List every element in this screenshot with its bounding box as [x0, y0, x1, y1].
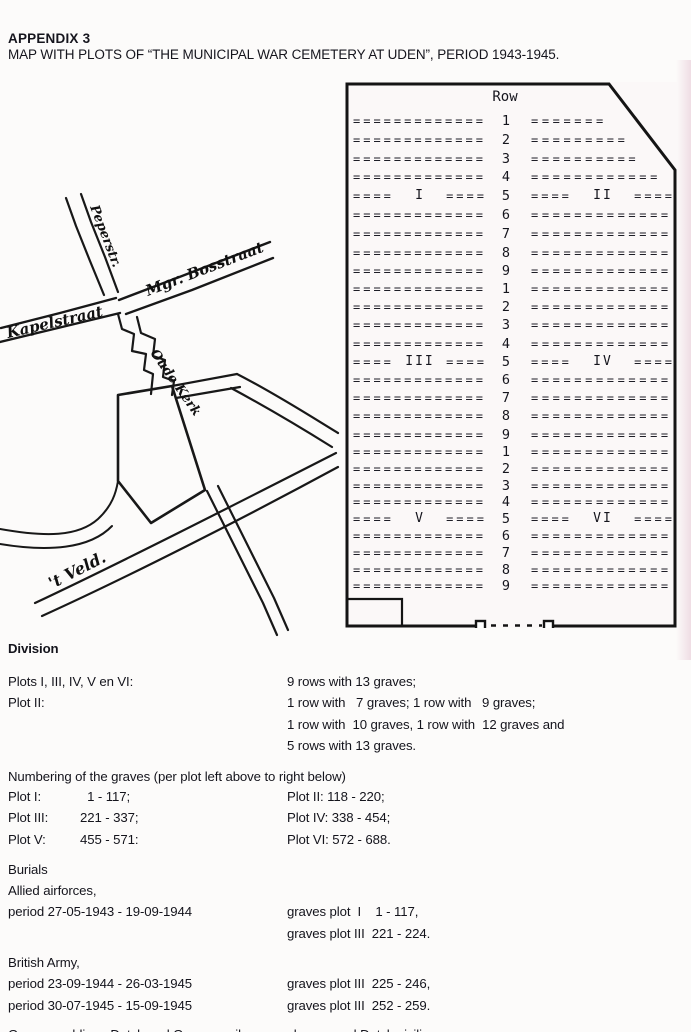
grave-group: ====	[353, 187, 394, 206]
row-number: 4	[489, 335, 523, 353]
plot-IV-row-4-graves: =============	[531, 335, 675, 353]
row-number: 7	[489, 225, 523, 244]
street-veld	[35, 453, 336, 603]
plot-VI-row-8-graves: =============	[531, 562, 675, 579]
road-east-2	[231, 388, 332, 447]
row-number: 3	[489, 478, 523, 495]
division-plot-label	[8, 714, 287, 735]
row-number: 1	[489, 280, 523, 298]
burial-row: graves plot III 221 - 224.	[8, 923, 686, 944]
burial-entry: German soldiers, Dutch and German railwa…	[8, 1024, 686, 1032]
plot-label-VI: VI	[593, 511, 613, 528]
plot-label-V: V	[415, 511, 425, 528]
burials-section: Burials Allied airforces,period 27-05-19…	[8, 862, 686, 1032]
burials-heading: Burials	[8, 862, 686, 878]
grave-row: =============1=============	[345, 280, 677, 298]
numbering-plot-label: Plot III:	[8, 807, 80, 828]
plot-I-row-3-graves: =============	[353, 150, 487, 169]
label-oudekerk: Oude Kerk	[147, 347, 204, 419]
row-number: 2	[489, 131, 523, 150]
plot-IV-row-2-graves: =============	[531, 298, 675, 316]
grave-row: =============9=============	[345, 262, 677, 281]
burial-row: period 23-09-1944 - 26-03-1945graves plo…	[8, 973, 686, 994]
numbering-right: Plot II: 118 - 220;	[287, 786, 385, 807]
division-row: Plots I, III, IV, V en VI:9 rows with 13…	[8, 671, 686, 692]
burial-entries: Allied airforces,period 27-05-1943 - 19-…	[8, 880, 686, 1032]
plot-V-row-3-graves: =============	[353, 478, 487, 495]
numbering-right: Plot VI: 572 - 688.	[287, 829, 391, 850]
plot-I-row-2-graves: =============	[353, 131, 487, 150]
plot-III-row-7-graves: =============	[353, 389, 487, 407]
plot-label-III: III	[405, 353, 434, 371]
row-number: 8	[489, 244, 523, 263]
numbering-rows: Plot I: 1 - 117;Plot II: 118 - 220;Plot …	[8, 786, 686, 850]
row-number: 5	[489, 511, 523, 528]
numbering-plot-range: 221 - 337;	[80, 810, 138, 825]
division-heading: Division	[8, 641, 686, 657]
grave-row: =============6=============	[345, 528, 677, 545]
division-plot-label: Plot II:	[8, 692, 287, 713]
numbering-plot-range: 455 - 571:	[80, 832, 138, 847]
plot-II-row-8-graves: =============	[531, 244, 675, 263]
division-plot-value: 9 rows with 13 graves;	[287, 671, 416, 692]
text-sections: Division Plots I, III, IV, V en VI:9 row…	[8, 641, 686, 1032]
grave-row: ====V====5====VI====	[345, 511, 677, 528]
plot-IV-row-8-graves: =============	[531, 407, 675, 425]
road-east	[237, 374, 338, 433]
cemetery-plot-diagram: Row =============1====================2=…	[345, 82, 677, 628]
burial-group-label: German soldiers, Dutch and German railwa…	[8, 1024, 686, 1032]
division-plot-value: 1 row with 7 graves; 1 row with 9 graves…	[287, 692, 535, 713]
row-number: 9	[489, 426, 523, 444]
grave-row: =============6=============	[345, 206, 677, 225]
plot-VI-row-5-graves: ====VI====	[531, 511, 675, 528]
boundary-curve-2	[0, 526, 112, 548]
plot-I-row-4-graves: =============	[353, 168, 487, 187]
grave-row: =============1=======	[345, 112, 677, 131]
division-row: Plot II:1 row with 7 graves; 1 row with …	[8, 692, 686, 713]
row-column-header: Row	[465, 89, 545, 105]
plot-I-row-6-graves: =============	[353, 206, 487, 225]
burial-entry: Allied airforces,period 27-05-1943 - 19-…	[8, 880, 686, 944]
burial-period: period 23-09-1944 - 26-03-1945	[8, 973, 287, 994]
row-number: 3	[489, 316, 523, 334]
grave-group: ====	[446, 511, 487, 528]
plot-VI-row-6-graves: =============	[531, 528, 675, 545]
plot-label-IV: IV	[593, 353, 613, 371]
numbering-plot-label: Plot V:	[8, 829, 80, 850]
burial-row: period 27-05-1943 - 19-09-1944graves plo…	[8, 901, 686, 922]
plot-IV-row-1-graves: =============	[531, 280, 675, 298]
gate-post-right	[544, 621, 553, 628]
plot-II-row-6-graves: =============	[531, 206, 675, 225]
grave-row: =============7=============	[345, 545, 677, 562]
row-number: 7	[489, 545, 523, 562]
plot-IV-row-6-graves: =============	[531, 371, 675, 389]
numbering-row: Plot I: 1 - 117;Plot II: 118 - 220;	[8, 786, 686, 807]
burial-period: period 30-07-1945 - 15-09-1945	[8, 995, 287, 1016]
plot-VI-row-9-graves: =============	[531, 578, 675, 595]
grave-group: ====	[531, 187, 572, 206]
grave-row: =============4============	[345, 168, 677, 187]
plot-label-I: I	[415, 187, 425, 206]
grave-row: =============7=============	[345, 389, 677, 407]
grave-row: =============1=============	[345, 444, 677, 461]
grave-row: =============4=============	[345, 335, 677, 353]
row-number: 4	[489, 168, 523, 187]
plot-III-row-6-graves: =============	[353, 371, 487, 389]
burial-group-label: Allied airforces,	[8, 880, 686, 901]
grave-row: =============8=============	[345, 562, 677, 579]
burial-entry: British Army,period 23-09-1944 - 26-03-1…	[8, 952, 686, 1016]
grave-row: =============2=============	[345, 298, 677, 316]
grave-group: ====	[446, 187, 487, 206]
plot-VI-row-1-graves: =============	[531, 444, 675, 461]
plot-V-row-2-graves: =============	[353, 461, 487, 478]
boundary-curve	[0, 481, 118, 534]
plot-IV-row-3-graves: =============	[531, 316, 675, 334]
row-number: 6	[489, 206, 523, 225]
scanned-document-page: APPENDIX 3 MAP WITH PLOTS OF “THE MUNICI…	[0, 0, 691, 1032]
row-number: 2	[489, 298, 523, 316]
plot-II-row-9-graves: =============	[531, 262, 675, 281]
plot-I-row-7-graves: =============	[353, 225, 487, 244]
plot-III-row-2-graves: =============	[353, 298, 487, 316]
plot-III-row-8-graves: =============	[353, 407, 487, 425]
row-number: 9	[489, 262, 523, 281]
plot-IV-row-7-graves: =============	[531, 389, 675, 407]
plot-V-row-7-graves: =============	[353, 545, 487, 562]
page-header: APPENDIX 3 MAP WITH PLOTS OF “THE MUNICI…	[8, 31, 559, 63]
grave-row: =============2=========	[345, 131, 677, 150]
row-number: 8	[489, 562, 523, 579]
plot-I-row-9-graves: =============	[353, 262, 487, 281]
row-number: 7	[489, 389, 523, 407]
plot-VI-row-2-graves: =============	[531, 461, 675, 478]
plot-III-row-5-graves: ====III====	[353, 353, 487, 371]
grave-row: =============3==========	[345, 150, 677, 169]
grave-row: =============9=============	[345, 426, 677, 444]
row-number: 2	[489, 461, 523, 478]
division-plot-label: Plots I, III, IV, V en VI:	[8, 671, 287, 692]
plot-I-row-1-graves: =============	[353, 112, 487, 131]
division-plot-value: 5 rows with 13 graves.	[287, 735, 416, 756]
grave-row: =============3=============	[345, 316, 677, 334]
numbering-plot-range: 1 - 117;	[80, 789, 130, 804]
street-map: Peperstr. Mgr. Bosstraat Kapelstraat Oud…	[0, 95, 340, 640]
burial-group-label: British Army,	[8, 952, 686, 973]
division-rows: Plots I, III, IV, V en VI:9 rows with 13…	[8, 671, 686, 756]
plot-label-II: II	[593, 187, 613, 206]
grave-row: =============9=============	[345, 578, 677, 595]
grave-row: =============7=============	[345, 225, 677, 244]
row-number: 5	[489, 353, 523, 371]
grave-row: ====I====5====II====	[345, 187, 677, 206]
scan-edge-tint	[676, 60, 691, 660]
plot-III-row-4-graves: =============	[353, 335, 487, 353]
grave-group: ====	[446, 353, 487, 371]
row-number: 6	[489, 528, 523, 545]
burial-graves-range: graves plot I 1 - 117,	[287, 901, 418, 922]
division-plot-value: 1 row with 10 graves, 1 row with 12 grav…	[287, 714, 564, 735]
plot-I-row-5-graves: ====I====	[353, 187, 487, 206]
plot-VI-row-4-graves: =============	[531, 494, 675, 511]
row-number: 1	[489, 444, 523, 461]
corner-building	[347, 599, 402, 625]
division-row: 5 rows with 13 graves.	[8, 735, 686, 756]
row-number: 4	[489, 494, 523, 511]
label-kapelstraat: Kapelstraat	[4, 302, 105, 342]
numbering-heading: Numbering of the graves (per plot left a…	[8, 768, 686, 786]
grave-row: =============3=============	[345, 478, 677, 495]
grave-group: ====	[634, 353, 675, 371]
plot-I-row-8-graves: =============	[353, 244, 487, 263]
plot-II-row-3-graves: ==========	[531, 150, 675, 169]
plot-III-row-9-graves: =============	[353, 426, 487, 444]
division-row: 1 row with 10 graves, 1 row with 12 grav…	[8, 714, 686, 735]
grave-row: =============4=============	[345, 494, 677, 511]
plot-II-row-4-graves: ============	[531, 168, 675, 187]
grave-row: =============2=============	[345, 461, 677, 478]
grave-row: =============8=============	[345, 244, 677, 263]
burial-period	[8, 923, 287, 944]
burial-period: period 27-05-1943 - 19-09-1944	[8, 901, 287, 922]
grave-group: ====	[531, 511, 572, 528]
numbering-section: Numbering of the graves (per plot left a…	[8, 768, 686, 850]
grave-group: ====	[634, 187, 675, 206]
grave-row: =============8=============	[345, 407, 677, 425]
grave-group: ====	[353, 511, 394, 528]
row-number: 6	[489, 371, 523, 389]
grave-group: ====	[353, 353, 394, 371]
burial-graves-range: graves plot III 221 - 224.	[287, 923, 430, 944]
grave-group: ====	[531, 353, 572, 371]
plot-II-row-1-graves: =======	[531, 112, 675, 131]
gate-post-left	[476, 621, 485, 628]
plot-V-row-1-graves: =============	[353, 444, 487, 461]
plot-VI-row-7-graves: =============	[531, 545, 675, 562]
burial-row: period 30-07-1945 - 15-09-1945graves plo…	[8, 995, 686, 1016]
division-section: Division Plots I, III, IV, V en VI:9 row…	[8, 641, 686, 756]
division-plot-label	[8, 735, 287, 756]
plot-V-row-4-graves: =============	[353, 494, 487, 511]
grave-group: ====	[634, 511, 675, 528]
numbering-left: Plot III:221 - 337;	[8, 807, 287, 828]
burial-graves-range: graves plot III 252 - 259.	[287, 995, 430, 1016]
plot-V-row-6-graves: =============	[353, 528, 487, 545]
row-number: 5	[489, 187, 523, 206]
plot-II-row-5-graves: ====II====	[531, 187, 675, 206]
plot-II-row-2-graves: =========	[531, 131, 675, 150]
plot-III-row-3-graves: =============	[353, 316, 487, 334]
plot-V-row-8-graves: =============	[353, 562, 487, 579]
row-number: 3	[489, 150, 523, 169]
numbering-row: Plot V:455 - 571:Plot VI: 572 - 688.	[8, 829, 686, 850]
row-number: 9	[489, 578, 523, 595]
plot-IV-row-9-graves: =============	[531, 426, 675, 444]
numbering-left: Plot I: 1 - 117;	[8, 786, 287, 807]
appendix-label: APPENDIX 3	[8, 31, 559, 47]
row-number: 1	[489, 112, 523, 131]
plot-IV-row-5-graves: ====IV====	[531, 353, 675, 371]
label-veld: 't Veld.	[45, 548, 109, 593]
page-title: MAP WITH PLOTS OF “THE MUNICIPAL WAR CEM…	[8, 47, 559, 63]
numbering-left: Plot V:455 - 571:	[8, 829, 287, 850]
numbering-right: Plot IV: 338 - 454;	[287, 807, 390, 828]
numbering-row: Plot III:221 - 337;Plot IV: 338 - 454;	[8, 807, 686, 828]
plot-V-row-5-graves: ====V====	[353, 511, 487, 528]
burial-graves-range: graves plot III 225 - 246,	[287, 973, 430, 994]
plot-VI-row-3-graves: =============	[531, 478, 675, 495]
plot-V-row-9-graves: =============	[353, 578, 487, 595]
numbering-plot-label: Plot I:	[8, 786, 80, 807]
grave-row: =============6=============	[345, 371, 677, 389]
plot-II-row-7-graves: =============	[531, 225, 675, 244]
grave-row: ====III====5====IV====	[345, 353, 677, 371]
row-number: 8	[489, 407, 523, 425]
plot-III-row-1-graves: =============	[353, 280, 487, 298]
